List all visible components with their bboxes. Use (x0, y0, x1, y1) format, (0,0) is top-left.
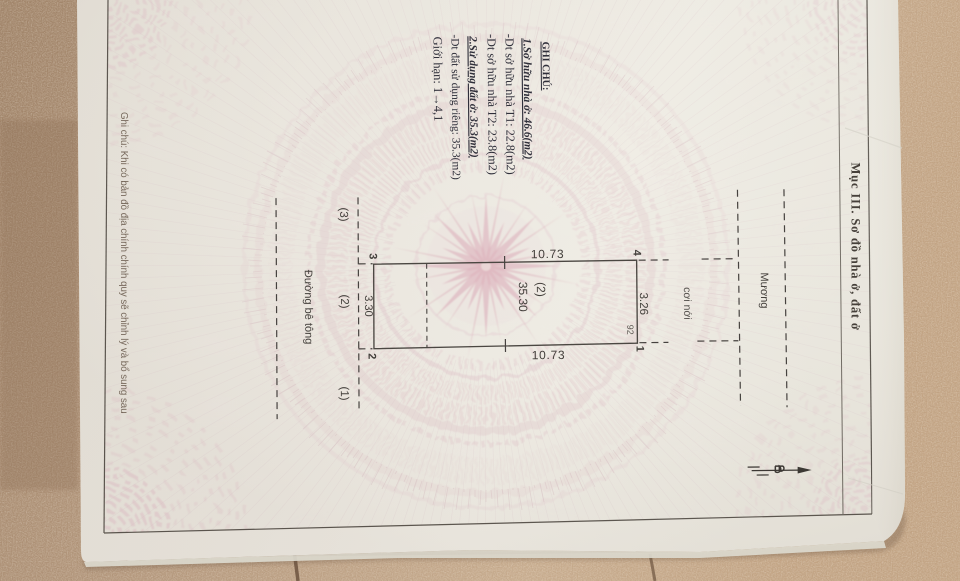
svg-text:Giới hạn: 1→4,1: Giới hạn: 1→4,1 (430, 37, 445, 122)
svg-text:cơi nới: cơi nới (681, 287, 693, 320)
svg-text:Ghi chú: Khi có bản đồ địa chí: Ghi chú: Khi có bản đồ địa chính chính q… (118, 112, 129, 414)
svg-text:Mương: Mương (758, 272, 770, 308)
svg-text:Mục III. Sơ đồ nhà ở, đất ở: Mục III. Sơ đồ nhà ở, đất ở (849, 163, 863, 331)
svg-text:35.30: 35.30 (516, 282, 530, 312)
svg-text:(1): (1) (338, 386, 350, 400)
svg-text:3: 3 (367, 253, 379, 259)
svg-text:-Dt sở hữu nhà T1: 22.8(m2): -Dt sở hữu nhà T1: 22.8(m2) (502, 34, 517, 175)
svg-text:(2): (2) (534, 282, 548, 297)
svg-text:10.73: 10.73 (532, 348, 566, 362)
svg-text:(2): (2) (338, 294, 350, 308)
svg-text:3.26: 3.26 (637, 293, 649, 316)
svg-text:10.73: 10.73 (531, 247, 565, 261)
svg-text:(3): (3) (337, 207, 349, 221)
svg-text:1: 1 (633, 346, 645, 352)
svg-text:1.Sở hữu nhà ở: 46.6(m2): 1.Sở hữu nhà ở: 46.6(m2) (520, 38, 533, 160)
svg-text:4: 4 (631, 250, 643, 257)
svg-text:2: 2 (366, 353, 378, 359)
svg-text:-Dt sở hữu nhà T2: 23.8(m2): -Dt sở hữu nhà T2: 23.8(m2) (484, 34, 499, 175)
svg-text:Đường bê tông: Đường bê tông (302, 270, 315, 345)
svg-text:GHI CHÚ:: GHI CHÚ: (540, 41, 552, 90)
svg-text:-Dt đất sử dụng riêng: 35.3(m2: -Dt đất sử dụng riêng: 35.3(m2) (448, 34, 461, 180)
svg-text:2.Sử dụng đất ở: 35.3(m2): 2.Sử dụng đất ở: 35.3(m2) (466, 35, 479, 158)
svg-text:3.30: 3.30 (362, 295, 374, 317)
svg-text:92: 92 (625, 325, 635, 335)
